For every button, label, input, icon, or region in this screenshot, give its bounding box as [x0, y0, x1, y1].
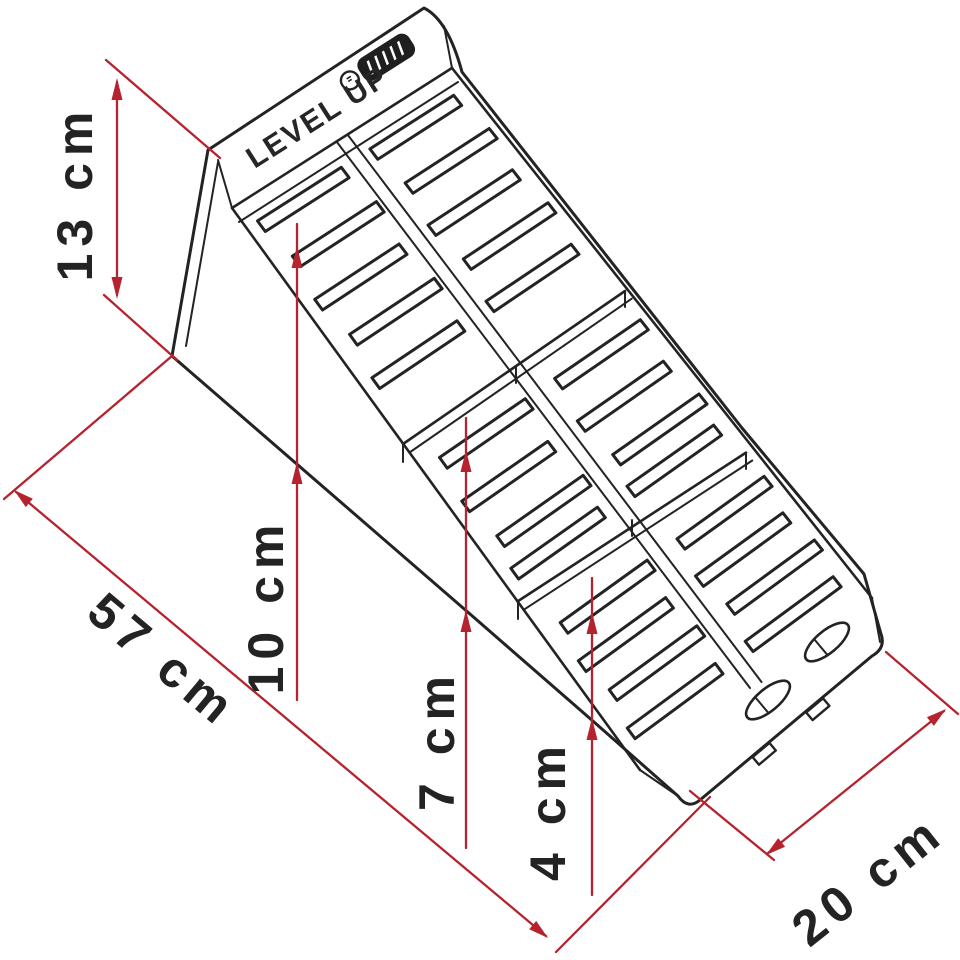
dim-label-step-third: 10 cm — [237, 518, 295, 695]
diagram-canvas — [0, 0, 960, 960]
dim-label-height: 13 cm — [46, 105, 104, 282]
dim-label-step-second: 7 cm — [408, 669, 466, 811]
dim-label-step-first: 4 cm — [519, 739, 577, 881]
extension-line — [4, 356, 172, 499]
extension-line — [556, 797, 710, 952]
arrowhead-up-icon — [112, 78, 123, 100]
extension-line — [886, 652, 958, 714]
extension-line — [106, 60, 220, 158]
arrowhead-down-icon — [112, 277, 123, 299]
extension-line — [104, 295, 177, 360]
level-up-ramp-diagram: LEVEL UP 13 cm 57 cm 10 cm 7 cm 4 cm 20 … — [0, 0, 960, 960]
extension-line — [690, 791, 774, 860]
